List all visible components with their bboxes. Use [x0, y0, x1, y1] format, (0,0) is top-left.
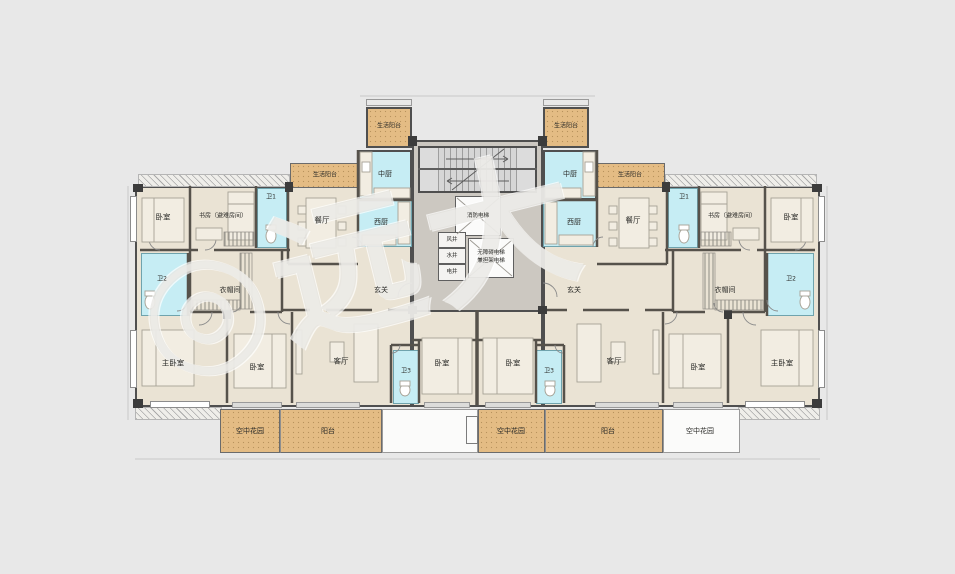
sliding-door: [424, 402, 470, 408]
sliding-door: [232, 402, 282, 408]
sliding-door: [485, 402, 531, 408]
service-box: [466, 416, 478, 444]
room-label-bath2: 卫2: [786, 277, 796, 284]
bottom-right-hatch-strip: [738, 407, 820, 420]
room-label-bedroom: 卧室: [250, 364, 265, 373]
left-parapet: [366, 99, 412, 106]
label-accessible-elevator: 无障碍电梯: [477, 250, 505, 256]
room-label-kitchen-cn: 中厨: [563, 170, 577, 178]
window: [150, 401, 210, 408]
right-bath3: [536, 350, 562, 404]
room-label-bedroom: 卧室: [435, 360, 450, 369]
label-balcony: 阳台: [321, 427, 335, 435]
bay-window: [130, 196, 137, 242]
label-sky-garden: 空中花园: [686, 427, 714, 435]
room-label-kitchen-w: 西厨: [567, 218, 581, 226]
room-label-bedroom: 卧室: [506, 360, 521, 369]
room-label-life-balcony: 生活阳台: [313, 173, 337, 180]
room-label-study: 书房（避难房间）: [708, 214, 756, 221]
floorplan-canvas: ◎远大 卧室 书房（避难房间） 卫1 餐厅 生活阳台 生活阳台 中厨 西厨 卫2…: [0, 0, 955, 574]
room-label-life-balcony: 生活阳台: [618, 173, 642, 180]
room-label-kitchen-w: 西厨: [374, 218, 388, 226]
room-label-living: 客厅: [607, 358, 622, 367]
right-parapet: [543, 99, 589, 106]
top-left-hatch-strip: [138, 174, 290, 187]
room-label-bedroom: 卧室: [691, 364, 706, 373]
room-label-bedroom: 卧室: [784, 214, 799, 223]
label-sky-garden: 空中花园: [497, 427, 525, 435]
room-label-life-balcony: 生活阳台: [377, 124, 401, 131]
bay-window: [130, 330, 137, 388]
window: [745, 401, 805, 408]
stair-landing-right: [517, 148, 535, 191]
room-label-bath1: 卫1: [679, 195, 689, 202]
room-label-bedroom: 卧室: [156, 214, 171, 223]
room-label-life-balcony: 生活阳台: [554, 124, 578, 131]
stair-landing-left: [420, 148, 438, 191]
sliding-door: [595, 402, 659, 408]
sliding-door: [296, 402, 360, 408]
sliding-door: [673, 402, 723, 408]
room-label-cloakroom: 衣帽间: [715, 286, 736, 294]
room-label-study: 书房（避难房间）: [199, 214, 247, 221]
room-label-foyer: 玄关: [374, 286, 388, 294]
label-electric-shaft: 电井: [446, 269, 457, 275]
right-bath2: [767, 253, 814, 316]
label-air-shaft: 风井: [446, 237, 457, 243]
bay-window: [818, 330, 825, 388]
center-bedrooms-floor: [412, 310, 543, 407]
room-label-dining: 餐厅: [626, 217, 641, 226]
room-label-cloakroom: 衣帽间: [220, 286, 241, 294]
left-bath2: [141, 253, 188, 316]
room-label-dining: 餐厅: [315, 217, 330, 226]
room-label-bath3: 卫3: [401, 369, 411, 376]
room-label-kitchen-cn: 中厨: [378, 170, 392, 178]
top-right-hatch-strip: [665, 174, 817, 187]
label-water-shaft: 水井: [446, 253, 457, 259]
label-sky-garden: 空中花园: [236, 427, 264, 435]
room-label-master: 主卧室: [162, 360, 185, 369]
room-label-bath1: 卫1: [266, 195, 276, 202]
room-label-bath3: 卫3: [544, 369, 554, 376]
center-void: [382, 409, 478, 453]
room-label-bath2: 卫2: [157, 277, 167, 284]
label-balcony: 阳台: [601, 427, 615, 435]
label-stretcher-elevator: 兼担架电梯: [477, 258, 505, 264]
bottom-left-hatch-strip: [135, 407, 222, 420]
bay-window: [818, 196, 825, 242]
room-label-foyer: 玄关: [567, 286, 581, 294]
room-label-living: 客厅: [334, 358, 349, 367]
left-bath3: [393, 350, 419, 404]
label-fire-elevator: 消防电梯: [467, 213, 489, 219]
room-label-master: 主卧室: [771, 360, 794, 369]
